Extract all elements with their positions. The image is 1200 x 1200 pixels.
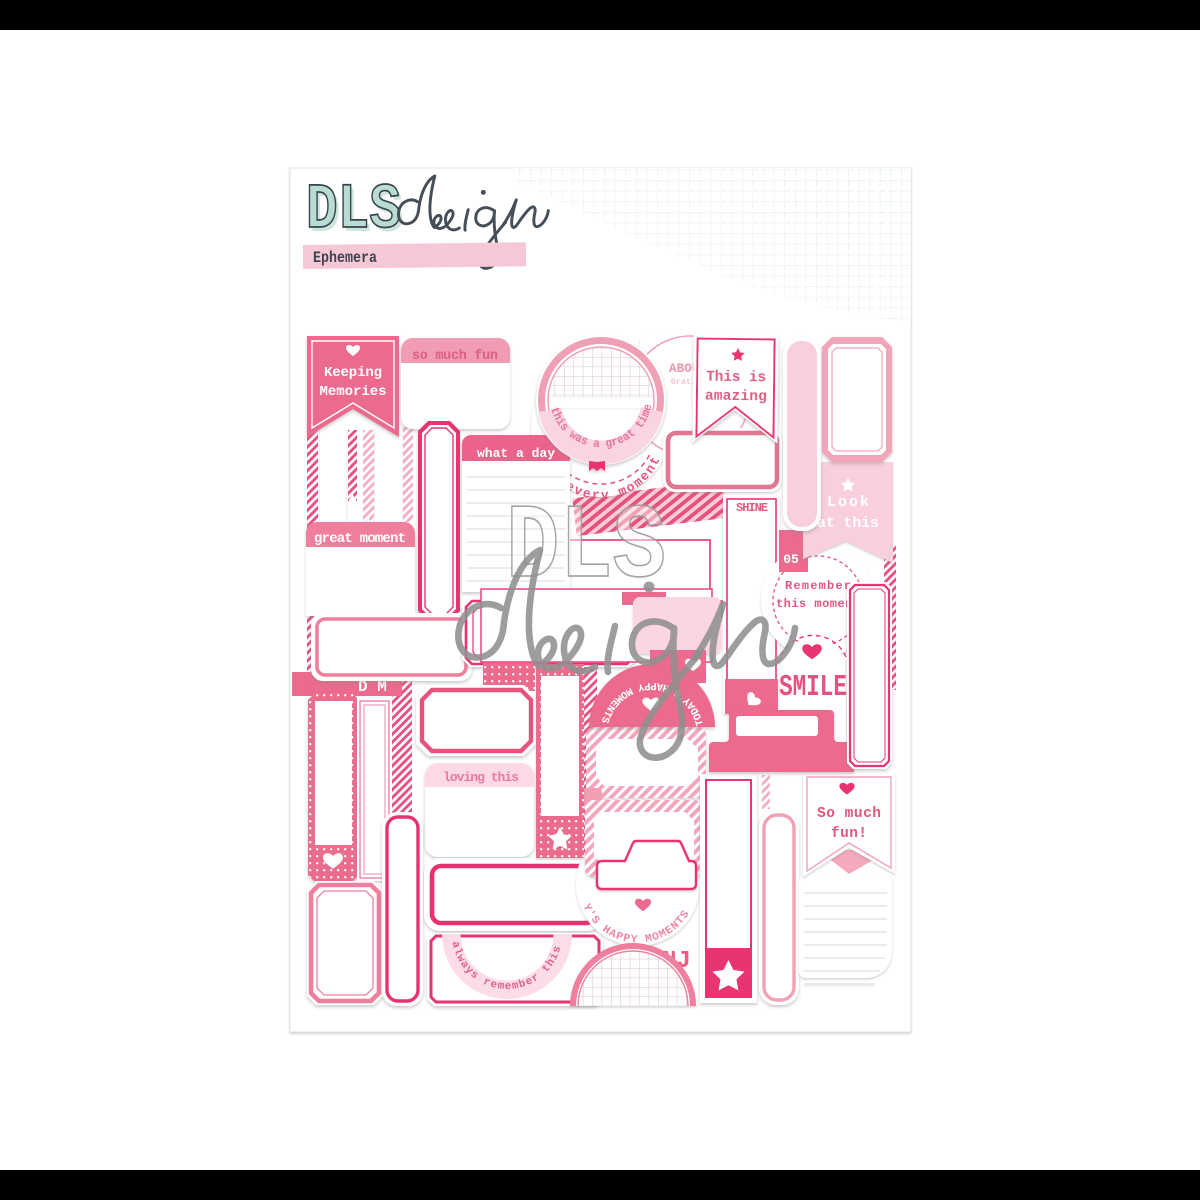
svg-text:Remember: Remember: [785, 579, 851, 593]
svg-text:fun!: fun!: [831, 826, 867, 842]
svg-text:at this: at this: [817, 515, 879, 532]
svg-text:loving this: loving this: [443, 770, 519, 785]
svg-text:Keeping: Keeping: [324, 365, 382, 381]
svg-text:SHINE: SHINE: [736, 501, 768, 515]
svg-text:DLS: DLS: [306, 175, 401, 247]
svg-text:amazing: amazing: [705, 389, 767, 406]
svg-text:05: 05: [783, 552, 799, 567]
svg-text:what a day: what a day: [477, 446, 555, 461]
svg-text:So much: So much: [817, 806, 881, 822]
svg-text:Memories: Memories: [320, 384, 387, 400]
svg-text:so much fun: so much fun: [412, 349, 498, 364]
svg-text:SMILE: SMILE: [779, 670, 847, 705]
svg-text:This is: This is: [706, 370, 766, 387]
svg-text:Ephemera: Ephemera: [313, 249, 377, 267]
svg-text:great moment: great moment: [314, 531, 406, 547]
svg-text:Look: Look: [827, 494, 869, 511]
